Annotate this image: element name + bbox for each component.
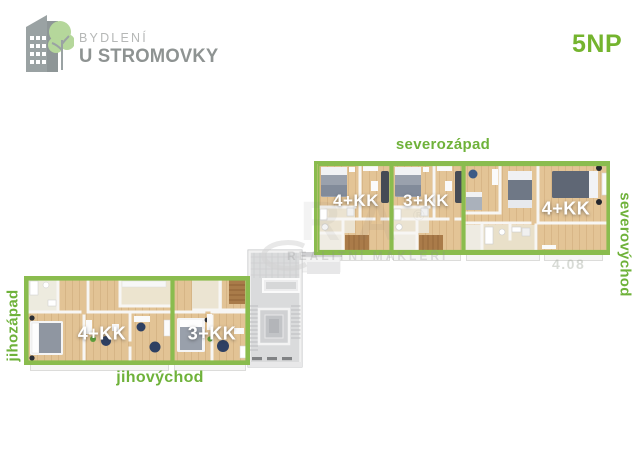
unit-label-n-3kk: 3+KK xyxy=(403,191,449,211)
label-jihovychod: jihovýchod xyxy=(60,369,260,387)
label-jihozapad: jihozápad xyxy=(5,266,22,386)
logo-text-line1: BYDLENÍ xyxy=(79,31,223,45)
label-severovychod: severovýchod xyxy=(617,155,634,335)
logo-text-line2: U STROMOVKY xyxy=(79,46,218,68)
label-severozapad: severozápad xyxy=(343,136,543,153)
unit-label-sw-4kk: 4+KK xyxy=(78,324,127,345)
unit-label-ne-4kk: 4+KK xyxy=(542,199,591,220)
unit-label-se-3kk: 3+KK xyxy=(188,324,237,345)
balcony-strip xyxy=(393,255,461,261)
floorplan-south-block xyxy=(24,276,250,365)
floor-level-label: 5NP xyxy=(572,30,622,59)
balcony-strip xyxy=(544,255,603,261)
floorplan-page: BYDLENÍ U STROMOVKY 5NP xyxy=(0,0,640,452)
logo-building-tree-icon xyxy=(24,12,74,74)
unit-label-nw-4kk: 4+KK xyxy=(333,191,379,211)
balcony-strip xyxy=(466,255,540,261)
stairwell-plan xyxy=(245,248,345,370)
logo-text: BYDLENÍ U STROMOVKY xyxy=(79,31,223,68)
